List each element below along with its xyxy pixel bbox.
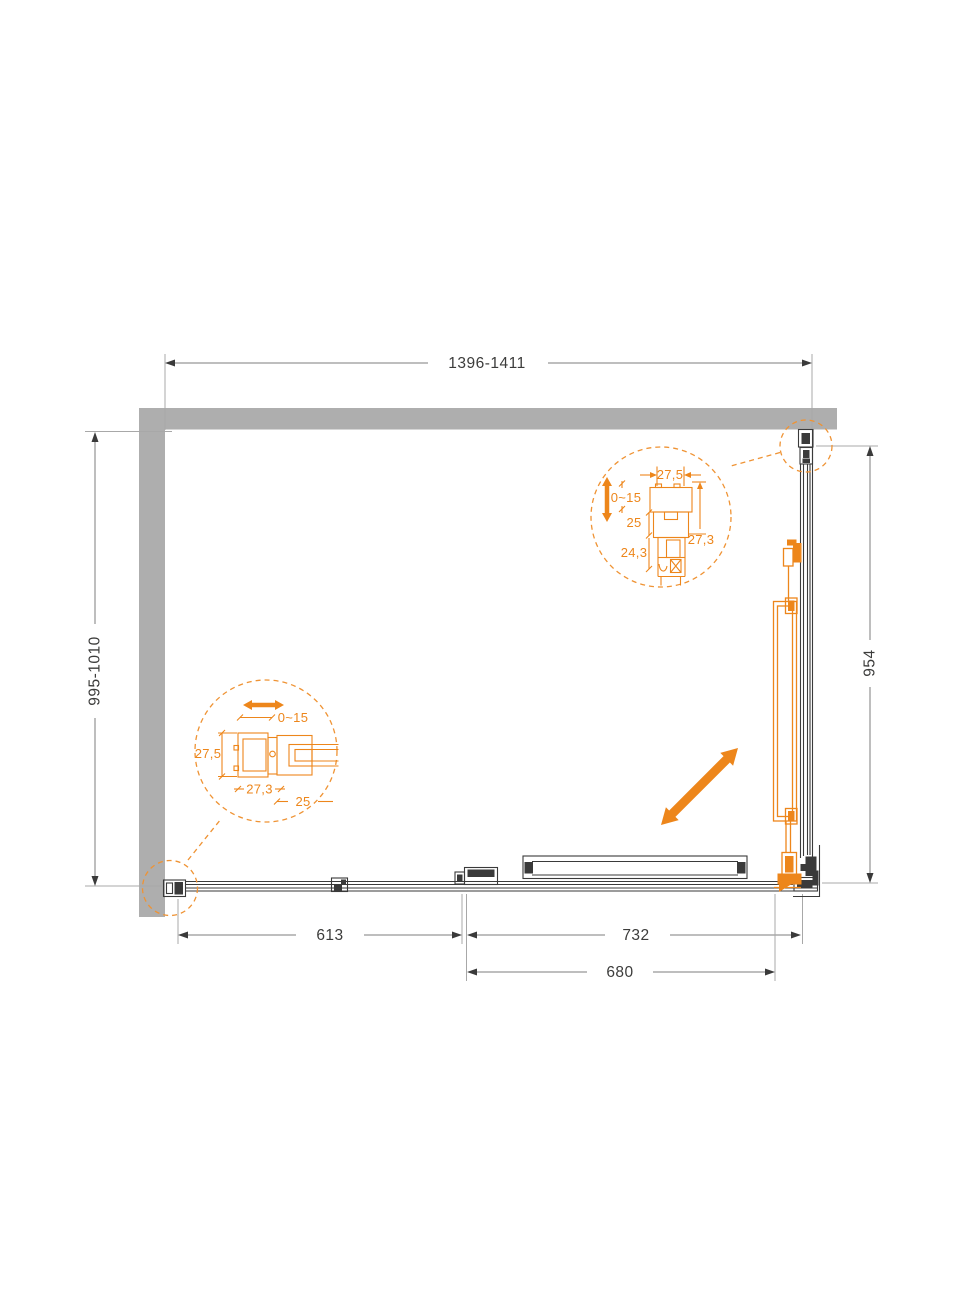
door-roller-left bbox=[525, 862, 534, 874]
wall-profile-top-right bbox=[799, 430, 814, 465]
dim-left-depth-label: 995-1010 bbox=[87, 636, 104, 706]
side-glass-track bbox=[801, 430, 813, 859]
opening-direction-arrow bbox=[661, 748, 738, 825]
dimension-bottom-fixed-panel: 613 bbox=[178, 894, 462, 944]
detail-left-width-label: 27,3 bbox=[246, 782, 273, 797]
detail-wall-profile-section: 0~15 27,5 27,3 25 bbox=[195, 700, 339, 809]
detail-left-adjustment-label: 0~15 bbox=[278, 710, 308, 725]
detail-top-width-label: 27,5 bbox=[657, 467, 684, 482]
dim-right-height-label: 954 bbox=[862, 649, 879, 676]
callout-circles bbox=[143, 420, 833, 916]
callout-leader-right bbox=[729, 453, 780, 467]
dimension-right-height: 954 bbox=[816, 446, 879, 883]
technical-drawing-page: 1396-1411 995-1010 954 613 bbox=[0, 0, 975, 1300]
front-rail bbox=[186, 882, 819, 892]
dim-bottom-door-label: 680 bbox=[606, 964, 633, 981]
dimension-bottom-door: 680 bbox=[467, 894, 775, 981]
detail-left-rail-offset-label: 25 bbox=[295, 794, 310, 809]
shower-plan-drawing: 1396-1411 995-1010 954 613 bbox=[0, 0, 975, 1300]
detail-top-adjustment-label: 0~15 bbox=[611, 490, 641, 505]
detail-top-rail-depth-label: 25 bbox=[626, 515, 641, 530]
side-panel-roller-bottom bbox=[774, 821, 802, 892]
side-sliding-panel bbox=[774, 598, 798, 824]
wall-left bbox=[139, 408, 165, 917]
detail-top-profile-section: 27,5 0~15 25 24,3 27,3 bbox=[602, 467, 714, 586]
wall-profile-bottom-left bbox=[164, 880, 186, 897]
detail-top-lower-depth-label: 24,3 bbox=[621, 545, 648, 560]
callout-leader-left bbox=[188, 819, 221, 860]
door-roller-right bbox=[737, 862, 746, 874]
detail-left-depth-label: 27,5 bbox=[195, 746, 222, 761]
dim-bottom-fixed-label: 613 bbox=[316, 927, 343, 944]
dim-bottom-opening-label: 732 bbox=[622, 927, 649, 944]
sliding-door-panel bbox=[523, 856, 747, 879]
dim-top-width-label: 1396-1411 bbox=[448, 355, 525, 372]
wall-structure bbox=[139, 408, 837, 917]
dimension-bottom-opening: 732 bbox=[467, 894, 803, 981]
wall-top bbox=[139, 408, 837, 430]
side-panel-roller-top bbox=[784, 540, 802, 602]
